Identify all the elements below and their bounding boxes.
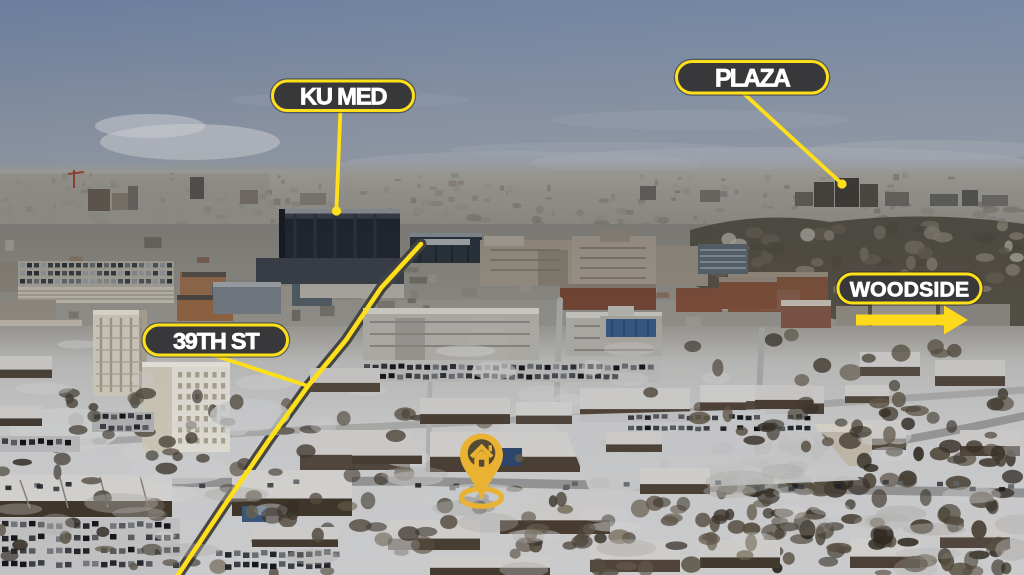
svg-text:KU MED: KU MED (300, 83, 387, 110)
svg-text:39TH ST: 39TH ST (173, 328, 260, 354)
svg-text:WOODSIDE: WOODSIDE (850, 278, 969, 302)
svg-text:PLAZA: PLAZA (715, 64, 791, 92)
